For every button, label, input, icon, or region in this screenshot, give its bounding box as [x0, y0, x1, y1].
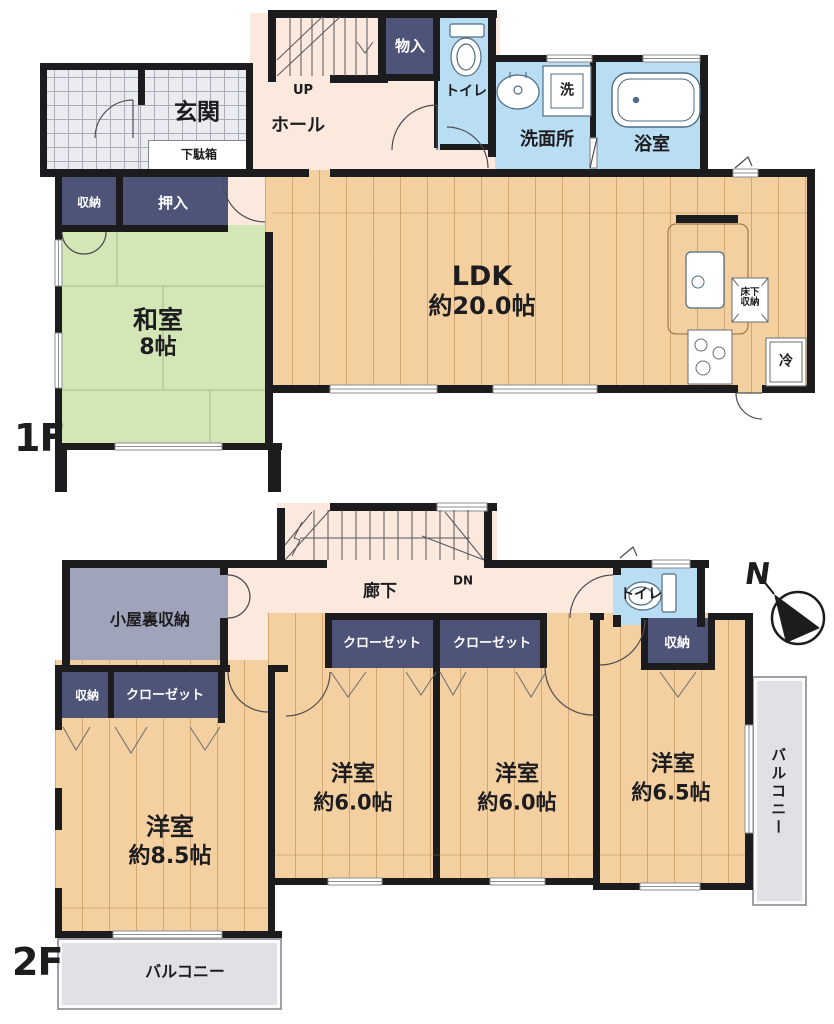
label-washitsu-size: 8帖 — [139, 336, 176, 360]
label-attic-storage: 小屋裏収納 — [110, 611, 190, 629]
label-closet-mid1: クローゼット — [343, 637, 421, 651]
label-balcony-bottom: バルコニー — [145, 963, 225, 981]
label-room2-name: 洋室 — [331, 763, 375, 787]
walls-and-fixtures-layer — [0, 0, 834, 1024]
walls-2f — [55, 503, 753, 938]
label-toilet-1f: トイレ — [445, 84, 487, 99]
label-ldk-name: LDK — [452, 262, 513, 292]
label-compass-north: N — [743, 558, 773, 591]
label-room2-size: 約6.0帖 — [313, 791, 392, 814]
label-room4-name: 洋室 — [651, 753, 695, 777]
folding-door-marks — [63, 672, 696, 753]
toilet-1f-icon — [450, 24, 484, 76]
label-underfloor-storage: 床下収納 — [739, 288, 761, 309]
stairs-1f — [277, 17, 373, 76]
label-up: UP — [293, 84, 313, 98]
label-genkan: 玄関 — [174, 100, 220, 125]
bathtub-icon — [612, 73, 700, 127]
label-balcony-right: バルコニー — [770, 747, 787, 837]
label-bathroom: 浴室 — [634, 135, 670, 155]
label-getabako: 下駄箱 — [181, 148, 217, 161]
stairs-2f — [285, 510, 484, 560]
label-room3-name: 洋室 — [495, 763, 539, 787]
label-closet-left: クローゼット — [126, 689, 204, 703]
label-room1-size: 約8.5帖 — [129, 845, 212, 869]
label-shuno-2f-left: 収納 — [75, 689, 99, 702]
compass-icon — [762, 579, 824, 644]
label-dn: DN — [453, 574, 473, 587]
label-ldk-size: 約20.0帖 — [428, 293, 535, 319]
label-washitsu-name: 和室 — [133, 306, 183, 334]
label-fridge: 冷 — [779, 354, 793, 369]
washbasin-icon — [497, 72, 539, 109]
label-room3-size: 約6.0帖 — [477, 791, 556, 814]
label-toilet-2f: トイレ — [620, 587, 662, 602]
label-washer: 洗 — [560, 83, 574, 98]
label-monoire: 物入 — [395, 38, 425, 55]
label-hall: ホール — [271, 116, 325, 136]
label-oshiire: 押入 — [158, 195, 188, 212]
stove-icon — [688, 330, 732, 384]
label-floor-2f: 2F — [12, 942, 62, 984]
label-room1-name: 洋室 — [146, 814, 194, 840]
label-shuno-1f: 収納 — [77, 196, 101, 209]
label-closet-mid2: クローゼット — [453, 637, 531, 651]
label-corridor: 廊下 — [363, 583, 397, 602]
label-shuno-2f-right: 収納 — [664, 637, 690, 651]
floor-plan: 玄関 下駄箱 ホール UP 物入 トイレ 洗 洗面所 浴室 収納 押入 和室 8… — [0, 0, 834, 1024]
windows — [55, 55, 758, 938]
label-room4-size: 約6.5帖 — [631, 781, 710, 804]
label-senmenjo: 洗面所 — [520, 130, 574, 150]
label-floor-1f: 1F — [14, 418, 64, 460]
